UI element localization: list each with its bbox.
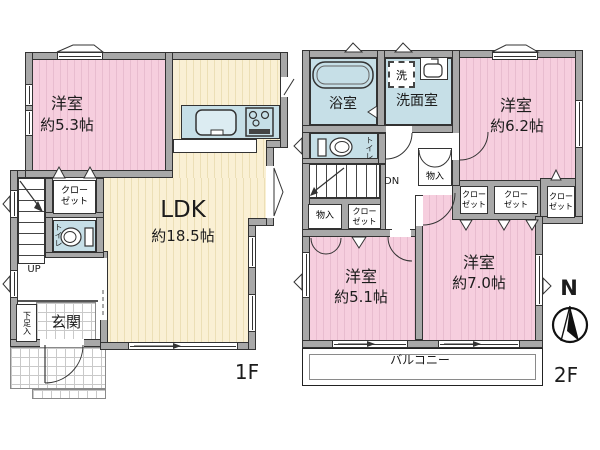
wall [165, 52, 173, 178]
shoe-storage-label: 下足入 [23, 311, 31, 335]
closet-2f-b: クロー ゼット [494, 186, 538, 214]
closet-2f-c: クロー ゼット [547, 186, 575, 218]
storage-2f-right: 物入 [418, 148, 452, 186]
laundry-label: 洗 [396, 67, 407, 83]
sliding-window [332, 340, 408, 348]
kitchen-ledge [173, 139, 257, 153]
staircase-2f [306, 164, 380, 198]
room-name: 洋室 [17, 95, 117, 113]
closet-2f-a: クロー ゼット [460, 186, 488, 214]
compass-north-label: N [549, 277, 589, 301]
wall [378, 133, 386, 164]
entrance-step-line [18, 300, 98, 302]
closet-label: ゼット [462, 200, 486, 210]
window-triangle-icon [294, 274, 302, 290]
storage-label: 物入 [426, 172, 444, 183]
porch-step-tiles [32, 389, 106, 399]
wall [302, 229, 392, 237]
door-opening-62 [452, 133, 459, 160]
entrance-label: 玄関 [36, 314, 96, 331]
bathroom-2f [310, 58, 377, 125]
room-name: 洋室 [429, 254, 529, 272]
window-triangle-icon [294, 138, 302, 154]
closet-label: ゼット [504, 200, 528, 210]
vanity-sink-box [420, 57, 448, 80]
washroom-label: 洗面室 [367, 94, 467, 110]
closet-label: クロー [462, 190, 486, 200]
door-opening-70 [416, 196, 423, 226]
wall [96, 178, 104, 258]
closet-label: クロー [504, 190, 528, 200]
window [302, 252, 310, 298]
closet-1f: クロー ゼット [53, 180, 96, 214]
sliding-window [438, 340, 520, 348]
bay-window-band-2f [492, 52, 538, 60]
room-size: 約7.0帖 [429, 275, 529, 292]
wall [45, 252, 104, 258]
wall [25, 170, 173, 178]
window [248, 294, 256, 332]
window-triangle-icon [3, 276, 10, 292]
wall [377, 50, 385, 133]
wall [280, 52, 288, 148]
sliding-window [128, 342, 238, 350]
window [248, 236, 256, 268]
window-triangle-icon [3, 196, 10, 212]
window-opening [266, 166, 274, 218]
door-opening-51 [390, 230, 411, 237]
floor-plan-canvas: クロー ゼット トイレ 下足入 洋室 約5.3帖 LDK 約18.5帖 UP 玄… [0, 0, 600, 450]
closet-label: クロー [353, 207, 377, 217]
closet-2f-stairs: クロー ゼット [348, 204, 381, 229]
closet-label: クロー [61, 186, 88, 197]
window [535, 254, 543, 306]
opening-hall-ldk [100, 258, 107, 320]
bay-window-icon [57, 45, 103, 52]
window [10, 190, 18, 218]
door-opening [281, 77, 288, 97]
wall [45, 178, 53, 258]
room-size: 約6.2帖 [467, 118, 567, 135]
kitchen-counter [181, 105, 280, 139]
closet-label: クロー [549, 192, 573, 202]
storage-2f-left: 物入 [308, 204, 342, 229]
casement-window-icon [274, 168, 283, 216]
floor-label-2f: 2F [541, 364, 591, 386]
room-size: 約5.1帖 [311, 289, 411, 306]
room-name: 洋室 [311, 268, 411, 286]
toilet-1f-label: トイレ [54, 223, 62, 247]
stairs-up-label: UP [20, 264, 48, 275]
room-name: 洋室 [466, 97, 566, 115]
compass-icon [553, 306, 587, 342]
closet-label: ゼット [61, 197, 88, 208]
porch-tiles [10, 347, 106, 389]
room-1f-western-5-3 [33, 60, 165, 170]
balcony-label: バルコニー [370, 354, 470, 367]
wall [302, 50, 310, 348]
stairs-down-label: DN [384, 176, 412, 187]
wall [302, 125, 460, 133]
window [10, 270, 18, 298]
room-size: 約18.5帖 [133, 228, 233, 245]
toilet-2f-label: トイレ [365, 136, 373, 160]
bay-window-band-1f [57, 52, 103, 60]
closet-label: ゼット [353, 217, 377, 227]
wall [452, 50, 460, 186]
door-opening-entrance [40, 339, 84, 347]
door-opening-washroom [386, 126, 412, 133]
closet-label: ゼット [549, 202, 573, 212]
door-arc [386, 133, 412, 159]
shoe-storage-box: 下足入 [16, 304, 37, 342]
room-size: 約5.3帖 [17, 117, 117, 134]
window [575, 100, 583, 148]
staircase-1f [18, 178, 45, 264]
floor-label-1f: 1F [222, 361, 272, 383]
washing-machine-box: 洗 [388, 61, 415, 88]
room-name: LDK [133, 198, 233, 224]
storage-label: 物入 [316, 211, 334, 222]
